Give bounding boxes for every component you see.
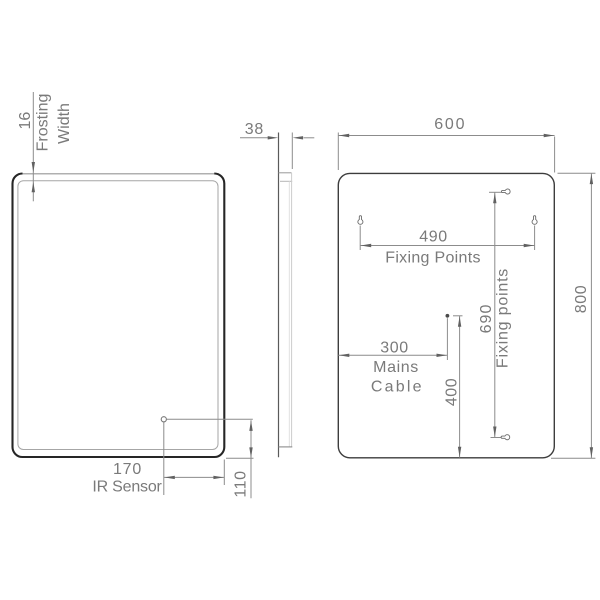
svg-text:800: 800 bbox=[573, 285, 590, 314]
svg-text:600: 600 bbox=[434, 116, 466, 133]
svg-text:Mains: Mains bbox=[373, 359, 419, 376]
svg-text:38: 38 bbox=[245, 121, 264, 138]
svg-text:400: 400 bbox=[444, 378, 461, 406]
svg-text:170: 170 bbox=[113, 461, 142, 478]
svg-text:Fixing points: Fixing points bbox=[494, 268, 511, 368]
svg-text:110: 110 bbox=[233, 470, 250, 497]
svg-text:690: 690 bbox=[478, 304, 495, 334]
svg-text:IR Sensor: IR Sensor bbox=[92, 479, 162, 496]
svg-text:490: 490 bbox=[419, 229, 448, 246]
svg-text:Cable: Cable bbox=[371, 378, 424, 395]
svg-text:Frosting: Frosting bbox=[35, 94, 52, 152]
svg-text:Width: Width bbox=[56, 103, 73, 144]
svg-text:16: 16 bbox=[17, 112, 34, 130]
svg-text:Fixing Points: Fixing Points bbox=[385, 249, 481, 266]
svg-text:300: 300 bbox=[380, 340, 409, 357]
